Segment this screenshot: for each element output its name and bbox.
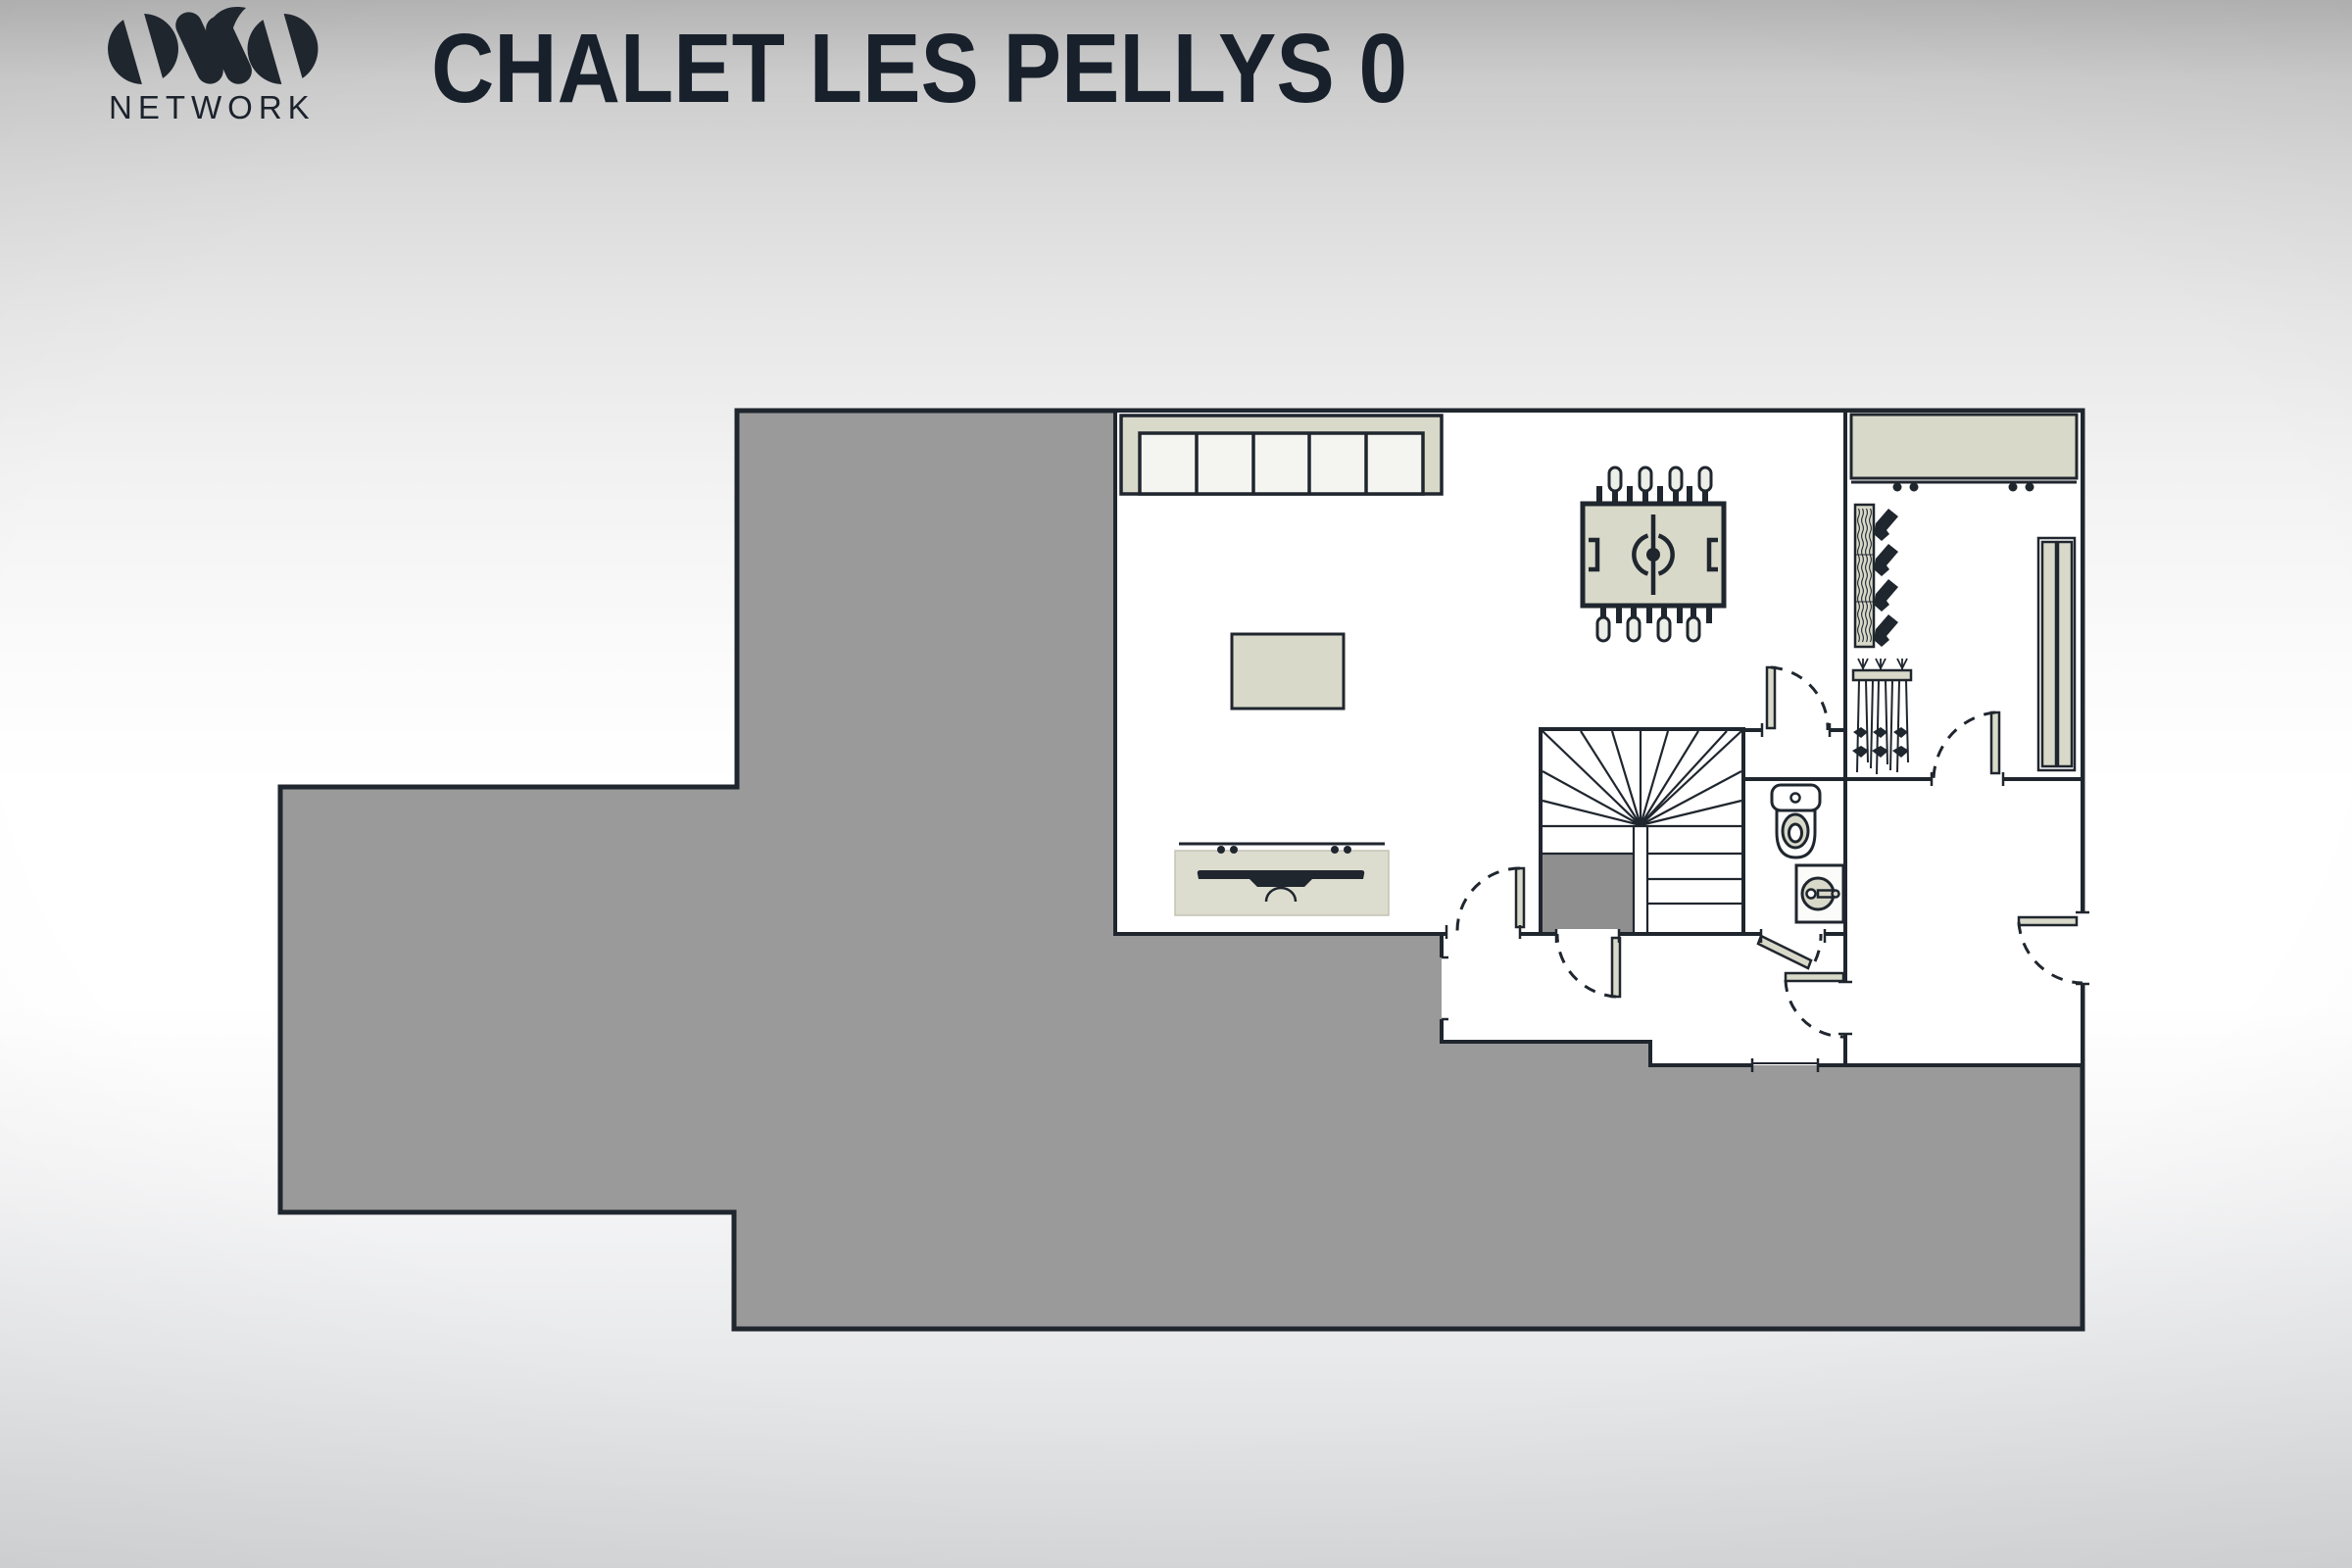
svg-text:CHALET LES PELLYS 0: CHALET LES PELLYS 0 xyxy=(431,14,1407,123)
svg-text:NETWORK: NETWORK xyxy=(109,89,316,125)
